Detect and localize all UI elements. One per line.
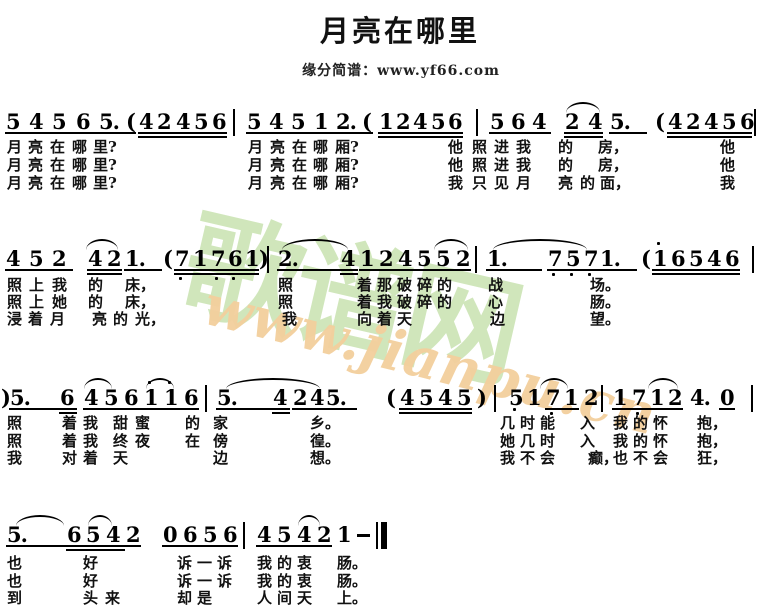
note-token: 6 <box>212 111 226 132</box>
lyric-char: 我 <box>516 157 531 174</box>
note-token: 4 <box>29 111 43 132</box>
beam-line <box>456 408 472 410</box>
note-token: 6 <box>183 524 197 545</box>
lyric-char: 不 <box>520 450 535 467</box>
beam-line <box>156 132 175 134</box>
lyric-char: 厢? <box>335 157 359 174</box>
beam-line <box>244 273 259 275</box>
lyric-char: 能 <box>540 415 555 432</box>
lyric-char: 上。 <box>337 590 367 607</box>
beam-line <box>739 132 752 134</box>
note-token: 2 <box>668 387 682 408</box>
beam-line <box>706 269 724 271</box>
beam-line <box>309 408 325 410</box>
barline <box>205 385 207 412</box>
beam-line <box>296 545 316 547</box>
beam-line <box>545 408 563 410</box>
lyric-char: 上 <box>29 294 44 311</box>
lyric-char: 破 <box>397 277 412 294</box>
lyric-char: 亮 <box>270 175 285 192</box>
note-token: 2 <box>107 248 121 269</box>
beam-line <box>412 136 430 138</box>
lyric-char: 亮 <box>28 157 43 174</box>
note-token: 5 <box>6 111 20 132</box>
lyric-char: 我 <box>613 433 628 450</box>
note-token: 4. <box>690 387 710 408</box>
beam-line <box>246 132 268 134</box>
beam-line <box>435 269 455 271</box>
note-token: 5 <box>291 111 305 132</box>
lyric-char: 着 <box>62 415 77 432</box>
beam-line <box>706 273 724 275</box>
note-token: 5 <box>104 387 118 408</box>
lyric-char: 的 <box>88 277 103 294</box>
paren: ( <box>386 387 395 408</box>
note-token: 4 <box>88 248 102 269</box>
lyric-char: 的 <box>277 573 292 590</box>
lyric-char: 场。 <box>590 277 620 294</box>
beam-line <box>210 273 227 275</box>
lyric-char: 着 <box>83 450 98 467</box>
note-token: 5 <box>247 111 261 132</box>
beam-line <box>83 408 103 410</box>
lyric-char: 几 <box>500 415 515 432</box>
slur-arc <box>493 239 587 250</box>
lyric-char: 上 <box>29 277 44 294</box>
lyric-char: 在 <box>50 139 65 156</box>
lyric-char: 亮 <box>92 311 107 328</box>
lyric-char: 我 <box>448 175 463 192</box>
lyric-char: 照 <box>7 277 22 294</box>
lyric-char: 的 <box>277 555 292 572</box>
lyric-char: 照 <box>7 294 22 311</box>
lyric-char: 诉 <box>217 573 232 590</box>
note-token: 1 <box>164 387 178 408</box>
lyric-char: 进 <box>494 157 509 174</box>
beam-line <box>455 269 471 271</box>
note-token: 5 <box>419 387 433 408</box>
note-token: 2 <box>396 111 410 132</box>
beam-line <box>563 408 579 410</box>
beam-line <box>719 408 735 410</box>
note-token: 2 <box>584 387 598 408</box>
beam-line <box>66 545 85 547</box>
beam-line <box>182 545 202 547</box>
lyric-char: 在 <box>292 175 307 192</box>
beam-line <box>564 132 587 134</box>
lyric-char: 边 <box>213 450 228 467</box>
lyric-char: 碎 <box>417 294 432 311</box>
beam-line <box>222 545 238 547</box>
lyric-char: 房， <box>598 139 628 156</box>
beam-line <box>227 273 244 275</box>
note-token: 7 <box>175 248 189 269</box>
lyric-char: 我 <box>500 450 515 467</box>
note-token: 7 <box>584 248 598 269</box>
beam-line <box>163 408 183 410</box>
note-token: 1 <box>564 387 578 408</box>
beam-line <box>378 132 395 134</box>
note-token: 5. <box>326 387 346 408</box>
note-token: 2 <box>565 111 579 132</box>
beam-line <box>51 269 73 271</box>
lyric-char: 对 <box>62 450 77 467</box>
octave-dot-below <box>179 277 182 280</box>
note-token: 5 <box>431 111 445 132</box>
lyric-char: 甜 <box>113 415 128 432</box>
beam-line <box>685 136 703 138</box>
lyric-char: 他 <box>720 139 735 156</box>
note-token: 7 <box>548 248 562 269</box>
lyric-char: 到 <box>7 590 22 607</box>
beam-line <box>202 545 222 547</box>
lyric-char: 诉 <box>177 573 192 590</box>
beam-line <box>268 132 290 134</box>
lyric-char: 在 <box>292 139 307 156</box>
lyric-char: 月 <box>248 175 263 192</box>
lyric-char: 边 <box>490 311 505 328</box>
note-token: 6 <box>124 387 138 408</box>
note-token: 5 <box>722 111 736 132</box>
beam-line <box>87 269 106 271</box>
beam-line <box>412 132 430 134</box>
note-token: 4 <box>176 111 190 132</box>
barline <box>376 522 378 549</box>
paren: ) <box>1 387 10 408</box>
beam-line <box>667 132 685 134</box>
dash-note <box>357 534 370 537</box>
beam-line <box>143 408 163 410</box>
beam-line <box>437 408 456 410</box>
lyric-char: 我 <box>52 277 67 294</box>
beam-line <box>688 273 706 275</box>
note-token: 4 <box>297 524 311 545</box>
note-token: 5 <box>509 387 523 408</box>
paren: ( <box>126 111 135 132</box>
note-token: 7 <box>546 387 560 408</box>
note-token: 4 <box>704 111 718 132</box>
beam-line <box>565 269 583 271</box>
beam-line <box>416 269 435 271</box>
lyric-char: 肠。 <box>337 555 367 572</box>
beam-line <box>51 132 75 134</box>
paren: ( <box>641 248 650 269</box>
beam-line <box>290 132 313 134</box>
lyric-char: 抱， <box>697 415 727 432</box>
note-token: 4 <box>707 248 721 269</box>
lyric-char: 破 <box>397 294 412 311</box>
note-token: 5 <box>52 111 66 132</box>
beam-line <box>547 269 565 271</box>
lyric-char: 间 <box>277 590 292 607</box>
note-token: 0 <box>720 387 734 408</box>
beam-line <box>395 132 412 134</box>
lyric-char: 见 <box>494 175 509 192</box>
beam-line <box>59 408 77 410</box>
note-token: 5 <box>86 524 100 545</box>
barline <box>494 385 496 412</box>
note-token: 2 <box>126 524 140 545</box>
beam-line <box>399 412 418 414</box>
beam-line <box>272 412 290 414</box>
lyric-char: 光， <box>135 311 165 328</box>
beam-line <box>397 269 416 271</box>
note-token: 4 <box>532 111 546 132</box>
lyric-char: 一 <box>197 555 212 572</box>
lyric-char: 我 <box>720 175 735 192</box>
beam-line <box>105 549 125 551</box>
beam-line <box>105 545 125 547</box>
slur-arc <box>88 515 112 526</box>
lyric-char: 的 <box>633 415 648 432</box>
lyric-char: 好 <box>83 555 98 572</box>
lyric-char: 那 <box>377 277 392 294</box>
note-token: 1 <box>613 387 627 408</box>
note-token: 1. <box>600 248 620 269</box>
lyric-char: 照 <box>278 294 293 311</box>
beam-line <box>124 269 162 271</box>
note-token: 4 <box>273 387 287 408</box>
lyric-char: 亮 <box>270 157 285 174</box>
lyric-char: 入 <box>580 433 595 450</box>
lyric-char: 在 <box>50 175 65 192</box>
lyric-char: 月 <box>7 175 22 192</box>
lyric-char: 厢? <box>335 175 359 192</box>
lyric-char: 只 <box>472 175 487 192</box>
lyric-char: 蜜 <box>135 415 150 432</box>
note-token: 6 <box>228 248 242 269</box>
note-token: 5. <box>99 111 119 132</box>
lyric-char: 我 <box>83 433 98 450</box>
beam-line <box>211 136 227 138</box>
beam-line <box>724 273 740 275</box>
beam-line <box>703 136 721 138</box>
beam-line <box>210 269 227 271</box>
beam-line <box>587 132 603 134</box>
lyric-char: 衷 <box>297 555 312 572</box>
note-token: 0 <box>163 524 177 545</box>
note-token: 5. <box>10 387 30 408</box>
lyric-char: 心 <box>488 294 503 311</box>
slur-arc <box>146 378 174 389</box>
note-token: 6 <box>223 524 237 545</box>
beam-line <box>174 273 192 275</box>
note-token: 1 <box>314 111 328 132</box>
note-token: 5. <box>217 387 237 408</box>
note-token: 4 <box>269 111 283 132</box>
lyric-char: 会 <box>540 450 555 467</box>
lyric-char: 我 <box>282 311 297 328</box>
sheet-music-page: 歌谱网 www.jianpu.cn 月亮在哪里 缘分简谱：www.yf66.co… <box>0 0 760 609</box>
beam-line <box>652 269 670 271</box>
note-token: 2. <box>336 111 356 132</box>
note-token: 4 <box>341 248 355 269</box>
lyric-char: 会 <box>653 450 668 467</box>
beam-line <box>5 132 28 134</box>
beam-line <box>649 408 667 410</box>
note-token: 2 <box>52 248 66 269</box>
beam-line <box>688 269 706 271</box>
beam-line <box>437 412 456 414</box>
beam-line <box>6 545 66 547</box>
octave-dot-below <box>232 277 235 280</box>
lyric-char: 月 <box>516 175 531 192</box>
note-token: 1 <box>337 524 351 545</box>
lyric-char: 床， <box>125 294 155 311</box>
octave-dot-above <box>657 242 660 245</box>
lyric-char: 我 <box>613 415 628 432</box>
lyric-char: 也 <box>7 555 22 572</box>
note-token: 1 <box>245 248 259 269</box>
beam-line <box>227 269 244 271</box>
lyric-char: 哪 <box>72 157 87 174</box>
note-token: 5 <box>194 111 208 132</box>
beam-line <box>631 408 649 410</box>
paren: ( <box>655 111 664 132</box>
beam-line <box>739 136 752 138</box>
lyric-char: 我 <box>377 294 392 311</box>
slur-arc <box>298 515 320 526</box>
lyric-char: 的 <box>633 433 648 450</box>
lyric-char: 的 <box>88 294 103 311</box>
lyric-char: 着 <box>28 311 43 328</box>
lyric-char: 她 <box>500 433 515 450</box>
lyric-char: 照 <box>472 139 487 156</box>
note-token: 1 <box>193 248 207 269</box>
lyric-char: 一 <box>197 573 212 590</box>
lyric-char: 在 <box>185 433 200 450</box>
slur-arc <box>16 515 64 526</box>
lyric-char: 哪 <box>313 157 328 174</box>
octave-dot-below <box>215 277 218 280</box>
beam-line <box>216 408 272 410</box>
note-token: 1. <box>487 248 507 269</box>
lyric-char: 厢? <box>335 139 359 156</box>
beam-line <box>106 269 122 271</box>
beam-line <box>162 545 182 547</box>
lyric-char: 里? <box>93 139 117 156</box>
lyric-char: 我 <box>516 139 531 156</box>
lyric-char: 头 <box>83 590 98 607</box>
beam-line <box>175 136 193 138</box>
lyric-char: 想。 <box>310 450 340 467</box>
note-token: 6 <box>67 524 81 545</box>
lyric-char: 诉 <box>177 555 192 572</box>
beam-line <box>28 269 51 271</box>
lyric-char: 也 <box>7 573 22 590</box>
slur-arc <box>648 378 678 389</box>
beam-line <box>378 136 395 138</box>
note-token: 2 <box>686 111 700 132</box>
lyric-char: 衷 <box>297 573 312 590</box>
lyric-char: 抱， <box>697 433 727 450</box>
beam-line <box>103 408 123 410</box>
barline <box>601 385 603 412</box>
lyric-char: 却 <box>177 590 192 607</box>
note-token: 5 <box>490 111 504 132</box>
barline <box>751 385 753 412</box>
note-token: 6 <box>511 111 525 132</box>
beam-line <box>652 273 670 275</box>
beam-line <box>724 269 740 271</box>
lyric-char: 我 <box>257 573 272 590</box>
note-token: 6 <box>60 387 74 408</box>
lyric-char: 肠。 <box>337 573 367 590</box>
lyric-char: 浸 <box>7 311 22 328</box>
lyric-char: 里? <box>93 157 117 174</box>
beam-line <box>193 132 211 134</box>
note-token: 5 <box>566 248 580 269</box>
beam-line <box>175 132 193 134</box>
paren: ( <box>362 111 371 132</box>
lyric-char: 亮 <box>270 139 285 156</box>
beam-line <box>395 136 412 138</box>
lyric-char: 乡。 <box>310 415 340 432</box>
octave-dot-below <box>552 273 555 276</box>
beam-line <box>272 408 290 410</box>
lyric-char: 天 <box>113 450 128 467</box>
lyric-char: 碎 <box>417 277 432 294</box>
lyric-char: 我 <box>83 415 98 432</box>
beam-line <box>340 269 358 271</box>
lyric-char: 的 <box>437 294 452 311</box>
slur-arc <box>282 239 348 250</box>
lyric-char: 人 <box>257 590 272 607</box>
beam-line <box>667 136 685 138</box>
note-token: 5 <box>436 248 450 269</box>
score: 54565.(4245654512.(12456564245.(42456月亮在… <box>0 0 760 609</box>
beam-line <box>9 408 59 410</box>
beam-line <box>489 132 510 134</box>
lyric-char: 照 <box>7 415 22 432</box>
lyric-char: 我 <box>257 555 272 572</box>
note-token: 5 <box>689 248 703 269</box>
lyric-char: 夜 <box>135 433 150 450</box>
note-token: 5 <box>457 387 471 408</box>
lyric-char: 床， <box>125 277 155 294</box>
lyric-char: 天 <box>297 590 312 607</box>
note-token: 2 <box>317 524 331 545</box>
lyric-char: 望。 <box>590 311 620 328</box>
note-token: 4 <box>106 524 120 545</box>
lyric-char: 哪 <box>313 139 328 156</box>
lyric-char: 家 <box>213 415 228 432</box>
note-token: 4 <box>257 524 271 545</box>
note-token: 6 <box>76 111 90 132</box>
note-token: 1 <box>379 111 393 132</box>
note-token: 1 <box>653 248 667 269</box>
beam-line <box>106 273 122 275</box>
lyric-char: 照 <box>472 157 487 174</box>
lyric-char: 的 <box>558 139 573 156</box>
note-token: 2 <box>379 248 393 269</box>
lyric-char: 着 <box>357 294 372 311</box>
lyric-char: 着 <box>62 433 77 450</box>
lyric-char: 亮 <box>28 175 43 192</box>
lyric-char: 的 <box>437 277 452 294</box>
lyric-char: 也 <box>613 450 628 467</box>
lyric-char: 的 <box>113 311 128 328</box>
lyric-char: 他 <box>448 157 463 174</box>
note-token: 5. <box>7 524 27 545</box>
beam-line <box>583 269 599 271</box>
note-token: 6 <box>740 111 754 132</box>
lyric-char: 着 <box>377 311 392 328</box>
lyric-char: 照 <box>278 277 293 294</box>
lyric-char: 月 <box>50 311 65 328</box>
beam-line <box>28 132 51 134</box>
lyric-char: 狂， <box>697 450 727 467</box>
